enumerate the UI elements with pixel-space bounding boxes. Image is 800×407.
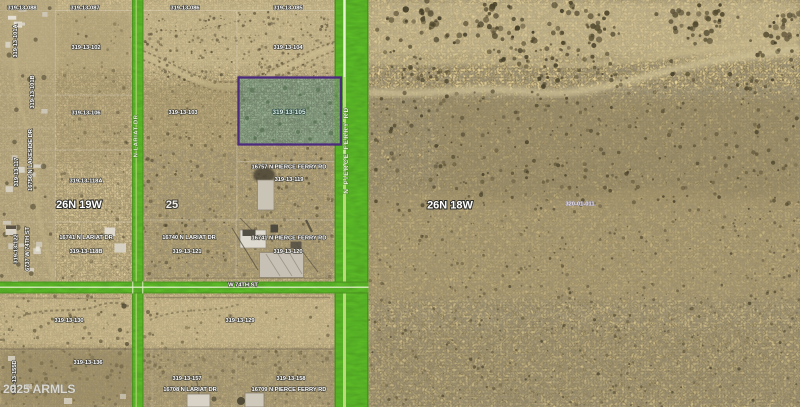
svg-text:6737 W 74TH ST: 6737 W 74TH ST — [25, 226, 31, 271]
svg-text:319-13-121: 319-13-121 — [172, 249, 202, 255]
svg-text:N LARIAT DR: N LARIAT DR — [134, 114, 140, 157]
svg-text:319-13-118B: 319-13-118B — [70, 249, 103, 255]
svg-text:319-13-103: 319-13-103 — [168, 110, 198, 116]
svg-text:319-13-101A: 319-13-101A — [13, 23, 19, 57]
svg-text:16708 N LARIAT DR: 16708 N LARIAT DR — [163, 387, 217, 393]
svg-text:W 74TH ST: W 74TH ST — [228, 283, 258, 289]
svg-text:320-01-011: 320-01-011 — [565, 202, 595, 208]
svg-text:319-13-088: 319-13-088 — [7, 6, 37, 12]
svg-text:16740 N LARIAT DR: 16740 N LARIAT DR — [162, 235, 216, 241]
svg-text:319-13-102: 319-13-102 — [71, 45, 100, 51]
svg-text:16709 N PIERCE FERRY RD: 16709 N PIERCE FERRY RD — [252, 387, 327, 393]
svg-text:319-13-157: 319-13-157 — [172, 376, 201, 382]
svg-text:319-13-104: 319-13-104 — [273, 45, 303, 51]
svg-text:319-13-120: 319-13-120 — [273, 249, 302, 255]
svg-text:319-13-129: 319-13-129 — [225, 318, 255, 324]
svg-text:26N 19W: 26N 19W — [56, 199, 102, 211]
svg-text:319-13-136: 319-13-136 — [73, 360, 103, 366]
svg-text:319-13-105: 319-13-105 — [272, 109, 306, 116]
svg-text:319-13-087: 319-13-087 — [70, 6, 99, 12]
svg-text:319-13-086: 319-13-086 — [170, 6, 200, 12]
svg-text:319-13-118A: 319-13-118A — [70, 179, 104, 185]
svg-text:25: 25 — [166, 199, 178, 211]
svg-text:319-13-119: 319-13-119 — [275, 177, 305, 183]
svg-text:16741 N PIERCE FERRY RD: 16741 N PIERCE FERRY RD — [252, 236, 327, 242]
svg-text:26N 18W: 26N 18W — [427, 200, 473, 212]
svg-text:16756 N LAKESIDE DR: 16756 N LAKESIDE DR — [28, 128, 34, 191]
svg-text:319-13-106: 319-13-106 — [71, 111, 101, 117]
svg-text:319-13-122: 319-13-122 — [14, 234, 20, 263]
svg-text:319-13-117: 319-13-117 — [14, 158, 20, 187]
svg-text:16757 N PIERCE FERRY RD: 16757 N PIERCE FERRY RD — [252, 165, 327, 171]
svg-text:319-13-101B: 319-13-101B — [30, 75, 36, 108]
svg-text:N PIERCE FERRY RD: N PIERCE FERRY RD — [343, 106, 350, 193]
svg-text:16741 N LARIAT DR: 16741 N LARIAT DR — [59, 235, 113, 241]
svg-text:319-13-085: 319-13-085 — [273, 6, 303, 12]
svg-text:319-13-130: 319-13-130 — [54, 318, 83, 324]
svg-text:2025 ARMLS: 2025 ARMLS — [3, 382, 75, 396]
svg-text:319-13-158: 319-13-158 — [276, 376, 306, 382]
